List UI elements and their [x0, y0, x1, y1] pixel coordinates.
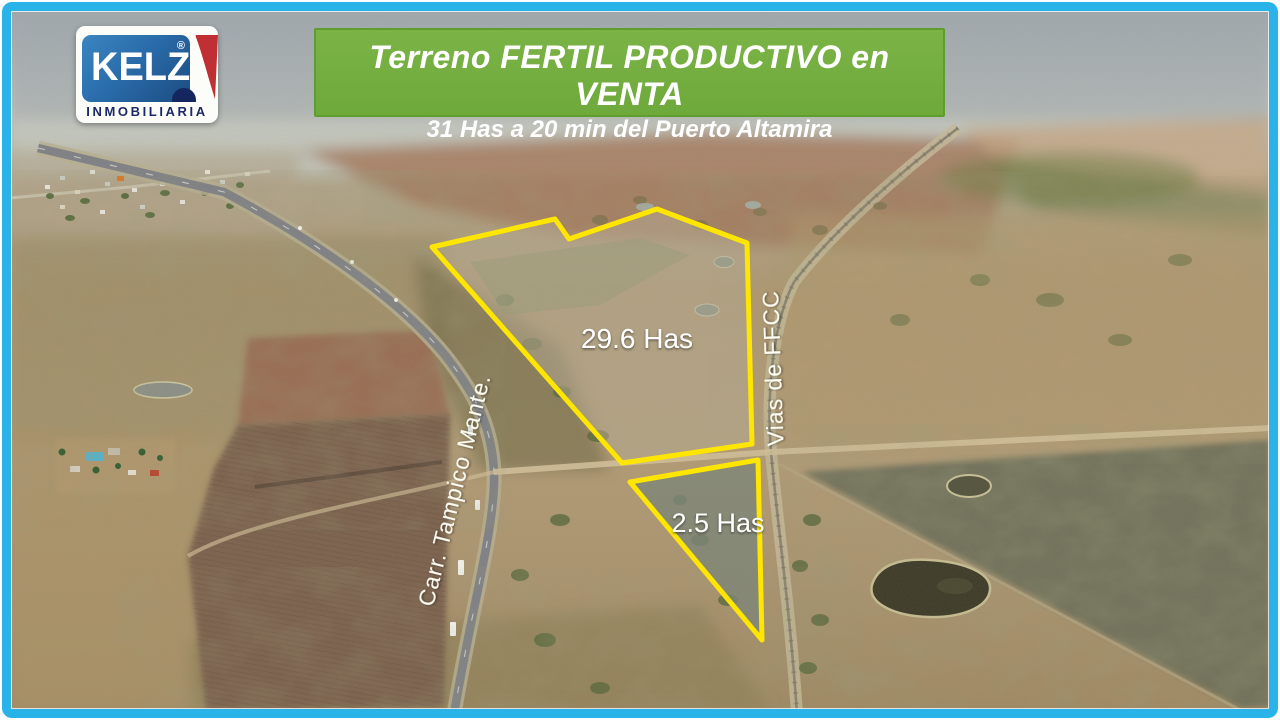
- kelz-sail-icon: [194, 35, 218, 101]
- kelz-logo: KELZ ® INMOBILIARIA: [76, 26, 218, 123]
- kelz-subtitle: INMOBILIARIA: [76, 104, 218, 119]
- kelz-dome-icon: [172, 88, 196, 102]
- registered-trademark-icon: ®: [177, 40, 185, 52]
- headline-banner: Terreno FERTIL PRODUCTIVO en VENTA 31 Ha…: [314, 28, 945, 117]
- parcel-label-29-6has: 29.6 Has: [581, 323, 693, 354]
- parcel-label-2-5has: 2.5 Has: [671, 508, 764, 538]
- kelz-brand-text: KELZ: [91, 35, 190, 99]
- banner-subtitle: 31 Has a 20 min del Puerto Altamira: [316, 116, 943, 144]
- road-label-vias-de-ffcc: Vias de FFCC: [757, 290, 788, 447]
- banner-title: Terreno FERTIL PRODUCTIVO en VENTA: [316, 39, 943, 113]
- real-estate-flyer: 29.6 Has 2.5 Has Carr. Tampico Mante. Vi…: [0, 0, 1280, 720]
